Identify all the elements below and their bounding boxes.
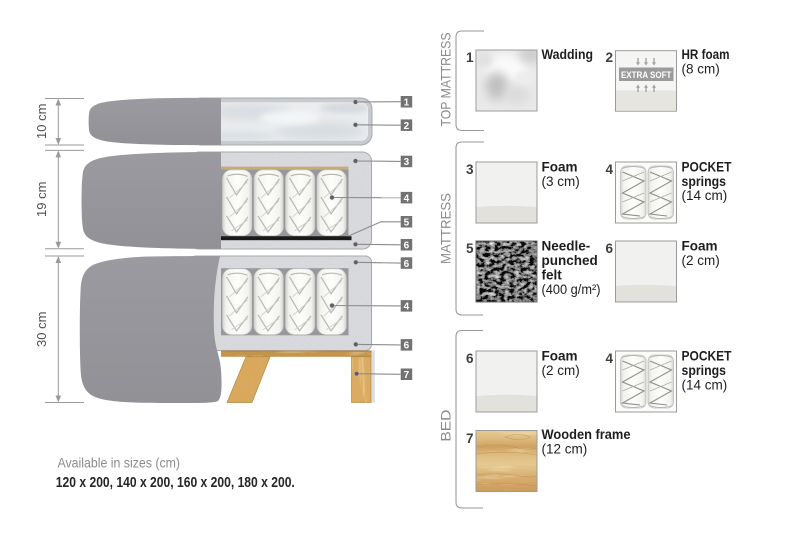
svg-text:6: 6	[404, 341, 410, 352]
svg-text:10 cm: 10 cm	[34, 104, 49, 139]
svg-text:7: 7	[404, 370, 410, 381]
svg-text:(14 cm): (14 cm)	[682, 188, 728, 203]
svg-text:2: 2	[404, 121, 410, 132]
svg-text:Foam: Foam	[542, 349, 578, 364]
svg-text:BED: BED	[438, 410, 454, 442]
svg-text:1: 1	[466, 50, 474, 65]
svg-text:4: 4	[606, 162, 614, 177]
svg-text:1: 1	[404, 98, 410, 109]
svg-text:5: 5	[404, 218, 410, 229]
svg-text:Available in sizes (cm): Available in sizes (cm)	[58, 455, 181, 471]
svg-text:Foam: Foam	[682, 239, 718, 254]
svg-text:3: 3	[466, 162, 474, 177]
svg-text:7: 7	[466, 431, 474, 446]
svg-text:Foam: Foam	[542, 160, 578, 175]
svg-text:POCKET: POCKET	[682, 349, 733, 364]
svg-text:4: 4	[404, 193, 410, 204]
svg-text:punched: punched	[542, 253, 598, 268]
svg-text:MATTRESS: MATTRESS	[438, 193, 454, 264]
svg-text:HR foam: HR foam	[682, 47, 730, 62]
svg-text:(400 g/m²): (400 g/m²)	[542, 282, 601, 297]
svg-text:120 x 200, 140 x 200, 160 x 20: 120 x 200, 140 x 200, 160 x 200, 180 x 2…	[56, 475, 295, 491]
svg-text:Needle-: Needle-	[542, 239, 591, 254]
svg-text:POCKET: POCKET	[682, 160, 733, 175]
svg-text:6: 6	[606, 241, 614, 256]
svg-text:(2 cm): (2 cm)	[682, 253, 720, 268]
svg-text:EXTRA SOFT: EXTRA SOFT	[621, 70, 672, 80]
svg-text:3: 3	[404, 157, 410, 168]
svg-text:2: 2	[606, 50, 614, 65]
svg-text:(8 cm): (8 cm)	[682, 62, 720, 77]
svg-text:19 cm: 19 cm	[34, 182, 49, 217]
svg-text:6: 6	[404, 241, 410, 252]
svg-text:6: 6	[404, 259, 410, 270]
svg-text:TOP MATTRESS: TOP MATTRESS	[438, 33, 454, 127]
svg-text:(14 cm): (14 cm)	[682, 378, 728, 393]
svg-text:4: 4	[606, 351, 614, 366]
svg-text:(3 cm): (3 cm)	[542, 174, 580, 189]
svg-text:springs: springs	[682, 363, 727, 378]
svg-text:springs: springs	[682, 174, 727, 189]
svg-text:felt: felt	[542, 268, 563, 283]
svg-text:4: 4	[404, 302, 410, 313]
svg-text:6: 6	[466, 351, 474, 366]
svg-text:30 cm: 30 cm	[34, 312, 49, 347]
svg-text:Wadding: Wadding	[542, 47, 594, 62]
svg-text:Wooden frame: Wooden frame	[542, 427, 631, 442]
svg-text:(12 cm): (12 cm)	[542, 442, 588, 457]
svg-text:(2 cm): (2 cm)	[542, 363, 580, 378]
svg-text:5: 5	[466, 241, 474, 256]
